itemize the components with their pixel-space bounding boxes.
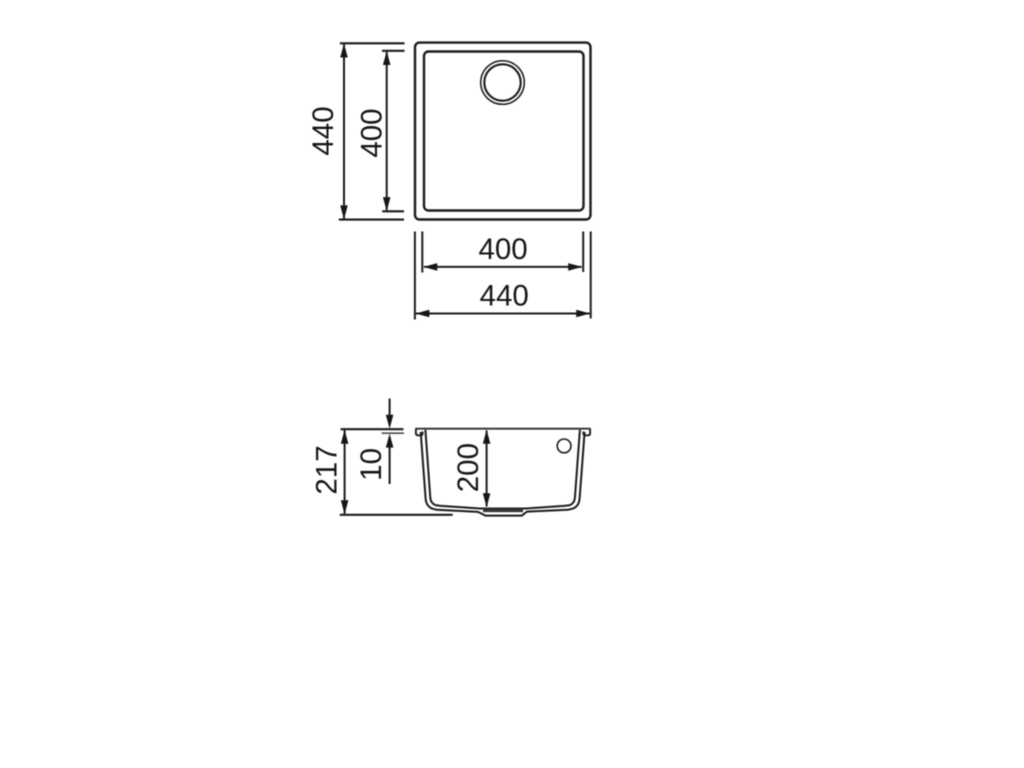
svg-text:400: 400 [478, 233, 527, 266]
svg-text:10: 10 [355, 448, 388, 481]
svg-text:440: 440 [480, 280, 529, 313]
svg-text:400: 400 [355, 108, 388, 157]
svg-text:440: 440 [307, 106, 340, 155]
svg-text:200: 200 [452, 443, 485, 492]
svg-text:217: 217 [311, 445, 344, 494]
